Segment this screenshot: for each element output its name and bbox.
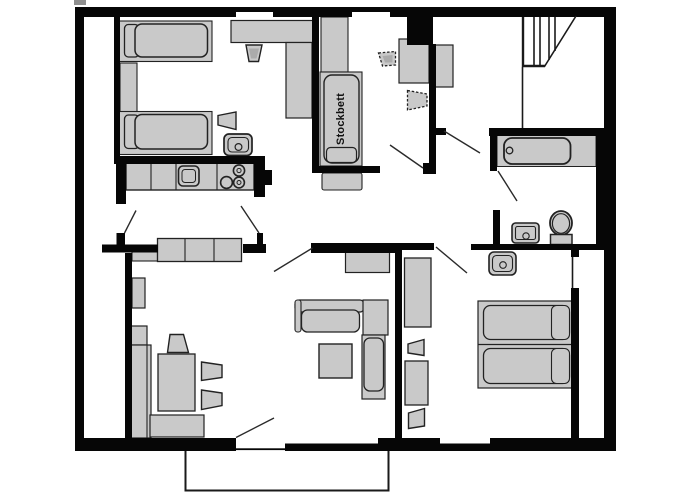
svg-text:Stockbett: Stockbett xyxy=(335,93,347,145)
